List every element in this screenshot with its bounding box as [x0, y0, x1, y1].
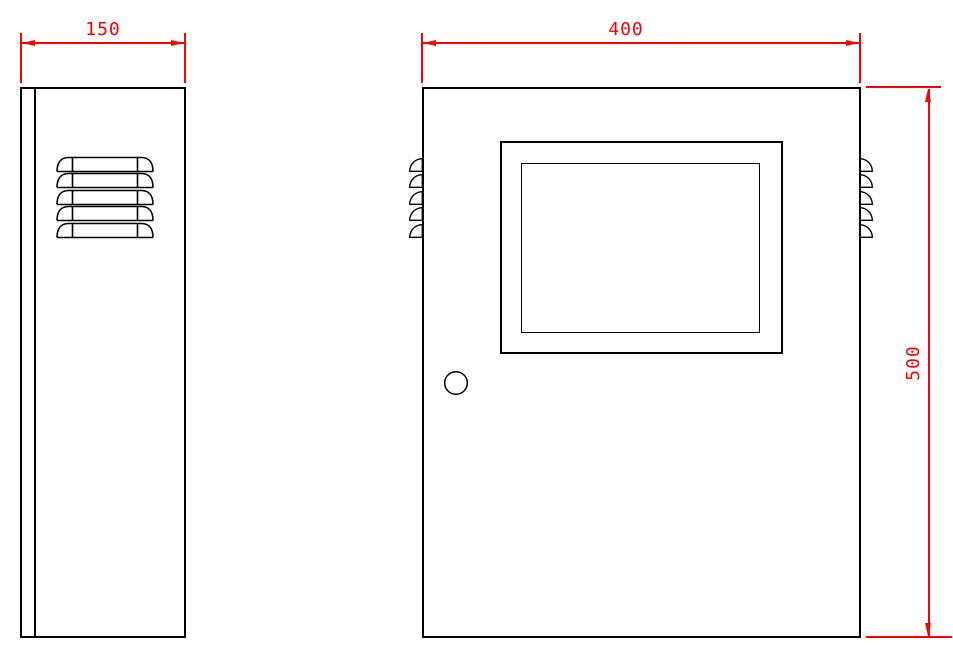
dim150-extension-right	[184, 33, 186, 83]
front-left-louver-3	[409, 191, 423, 205]
dim400-arrow-right-icon	[846, 40, 859, 46]
dim500-extension-bottom	[866, 636, 952, 638]
front-right-louver-3	[859, 191, 873, 205]
display-window-inner-frame	[521, 163, 760, 333]
front-left-louver-1	[409, 158, 423, 172]
front-left-louver-5	[409, 224, 423, 238]
front-left-louver-4	[409, 207, 423, 221]
side-louver-2	[56, 172, 154, 189]
cad-drawing-canvas: 150 400 500	[0, 0, 953, 648]
dim400-line	[422, 42, 859, 44]
dim150-arrow-left-icon	[22, 40, 35, 46]
dim500-arrow-bottom-icon	[925, 623, 931, 636]
dim500-extension-top	[866, 86, 941, 88]
front-right-louver-2	[859, 174, 873, 188]
front-right-louver-5	[859, 224, 873, 238]
dim500-arrow-top-icon	[925, 89, 931, 102]
side-louver-4	[56, 205, 154, 222]
dim400-arrow-left-icon	[423, 40, 436, 46]
dim400-label: 400	[400, 21, 852, 39]
side-view-door-edge-line	[34, 89, 36, 636]
dim150-arrow-right-icon	[171, 40, 184, 46]
side-louver-1	[56, 156, 154, 173]
dim500-line	[928, 89, 930, 636]
dim150-line	[21, 42, 185, 44]
side-louver-5	[56, 222, 154, 239]
dim500-label: 500	[905, 335, 923, 391]
dim400-extension-right	[859, 33, 861, 83]
dim150-label: 150	[21, 21, 185, 39]
front-left-louver-2	[409, 174, 423, 188]
front-right-louver-4	[859, 207, 873, 221]
side-louver-3	[56, 189, 154, 206]
front-right-louver-1	[859, 158, 873, 172]
door-knob-circle	[443, 370, 469, 396]
